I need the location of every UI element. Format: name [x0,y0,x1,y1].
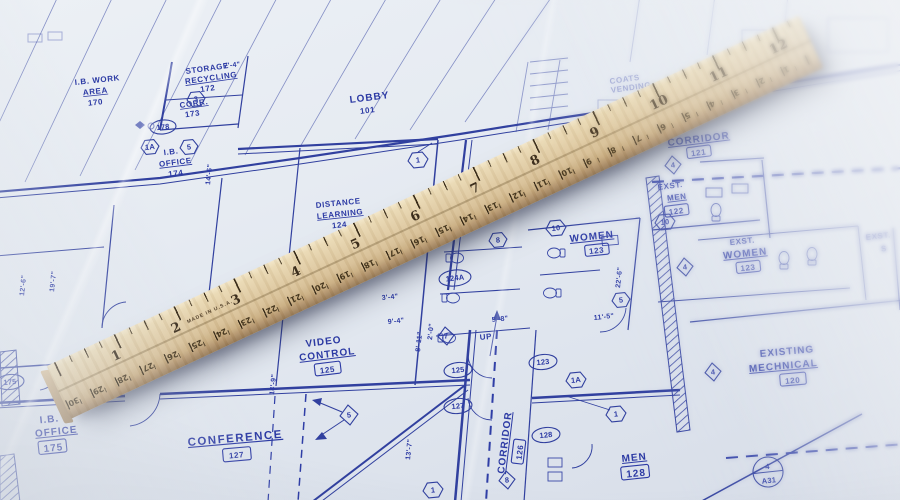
svg-text:175: 175 [43,442,64,455]
svg-text:10: 10 [551,223,561,233]
svg-text:4: 4 [710,367,716,376]
svg-text:4: 4 [670,160,676,169]
svg-text:101: 101 [360,105,376,116]
svg-text:OFFICE: OFFICE [158,156,192,169]
svg-text:8'-11": 8'-11" [415,331,424,352]
svg-text:MECHNICAL: MECHNICAL [749,358,819,375]
diamond-tag-5: 5 [339,404,359,426]
svg-text:126: 126 [515,444,526,460]
room-exst-women: EXST. WOMEN 123 [721,234,769,274]
diamond-tag-4c: 4 [704,362,722,382]
svg-text:123: 123 [536,357,550,367]
room-existing-mechanical: EXISTING MECHNICAL 120 [747,344,819,389]
svg-text:2'-0": 2'-0" [427,323,436,340]
hex-tag-1-corr: 1 [605,405,626,422]
room-corridor-lower-num: 126 [511,439,526,464]
svg-text:10: 10 [660,217,670,227]
svg-text:174: 174 [168,168,184,179]
svg-text:4: 4 [765,462,771,471]
door-tag-128: 128 [531,426,560,444]
svg-text:I.B.: I.B. [163,147,179,158]
svg-text:175: 175 [3,377,17,387]
svg-text:5'-8": 5'-8" [491,315,508,324]
svg-text:CORRIDOR: CORRIDOR [496,411,515,474]
svg-text:AREA: AREA [82,86,108,98]
svg-text:127: 127 [451,401,465,411]
svg-text:121: 121 [691,147,707,158]
room-video-control: VIDEO CONTROL 125 [297,333,358,378]
svg-text:11'-5": 11'-5" [593,313,614,322]
svg-text:EXISTING: EXISTING [759,344,814,360]
svg-text:MEN: MEN [667,192,688,203]
svg-text:I.B.: I.B. [39,413,60,426]
door-tag-123: 123 [528,353,557,371]
svg-text:A31: A31 [761,475,776,485]
svg-text:178: 178 [156,122,170,132]
svg-text:MEN: MEN [621,451,647,465]
svg-text:1A: 1A [145,142,156,152]
svg-text:5: 5 [346,410,351,419]
svg-text:19'-7": 19'-7" [49,271,58,292]
svg-text:4: 4 [682,262,688,271]
svg-text:7: 7 [443,331,448,340]
hex-tag-5-women: 5 [611,292,630,308]
hex-tag-1-lobby: 1 [407,151,428,168]
door-tag-125: 125 [443,361,472,379]
svg-text:5: 5 [186,142,191,151]
hex-tag-1a-top: 1A [140,139,159,155]
room-lobby: LOBBY 101 [349,90,391,117]
diamond-tag-4a: 4 [664,155,682,175]
svg-text:1: 1 [415,155,420,164]
svg-text:EXST.: EXST. [865,230,891,242]
up-label: UP [479,332,492,342]
blueprint-photo: I.B. WORK AREA 170 STORAGE RECYCLING 172… [0,0,900,500]
hex-tag-1a-corr: 1A [565,371,586,388]
svg-text:14'-6": 14'-6" [205,164,214,185]
room-conference: CONFERENCE 127 [187,429,285,465]
svg-text:12'-6": 12'-6" [19,275,28,296]
svg-text:124A: 124A [445,273,465,284]
svg-text:1A: 1A [571,375,582,385]
svg-text:9'-4": 9'-4" [387,317,404,326]
svg-text:EXST.: EXST. [729,236,755,248]
room-ib-office-lower: I.B. OFFICE 175 [33,412,80,456]
svg-text:7'-4": 7'-4" [223,61,240,70]
svg-text:120: 120 [785,376,801,386]
svg-text:13'-7": 13'-7" [405,439,414,460]
svg-text:3: 3 [193,94,198,103]
svg-text:22'-6": 22'-6" [615,267,624,288]
svg-text:5: 5 [618,295,623,304]
svg-text:WOMEN: WOMEN [569,229,614,245]
room-women: WOMEN 123 [569,229,616,258]
svg-text:3'-4": 3'-4" [381,293,398,302]
svg-text:173: 173 [184,108,200,119]
svg-text:8: 8 [504,475,509,484]
svg-text:128: 128 [539,430,553,440]
room-corridor-lower: CORRIDOR [496,411,515,474]
hex-tag-8: 8 [488,232,507,248]
hex-tag-1-conference: 1 [422,481,443,498]
svg-text:128: 128 [626,468,647,481]
svg-text:1: 1 [613,409,618,418]
svg-text:123: 123 [740,263,756,274]
room-exst-s-cut: EXST. S [865,230,892,255]
room-men: MEN 128 [619,451,650,481]
svg-text:125: 125 [451,365,465,375]
svg-text:LOBBY: LOBBY [349,90,390,106]
diamond-tag-4b: 4 [676,257,694,277]
svg-text:170: 170 [88,97,104,108]
svg-text:I.B. WORK: I.B. WORK [74,73,120,87]
svg-text:123: 123 [589,245,605,256]
svg-text:14'-9": 14'-9" [269,374,278,395]
svg-text:8: 8 [495,235,500,244]
svg-text:S: S [881,244,888,254]
svg-text:CONFERENCE: CONFERENCE [187,429,283,449]
svg-text:127: 127 [229,450,245,460]
svg-text:EXST.: EXST. [657,180,683,192]
svg-text:125: 125 [319,365,335,376]
svg-text:OFFICE: OFFICE [35,425,79,440]
svg-text:1: 1 [430,485,435,494]
svg-text:172: 172 [200,83,216,94]
svg-text:WOMEN: WOMEN [723,246,768,262]
